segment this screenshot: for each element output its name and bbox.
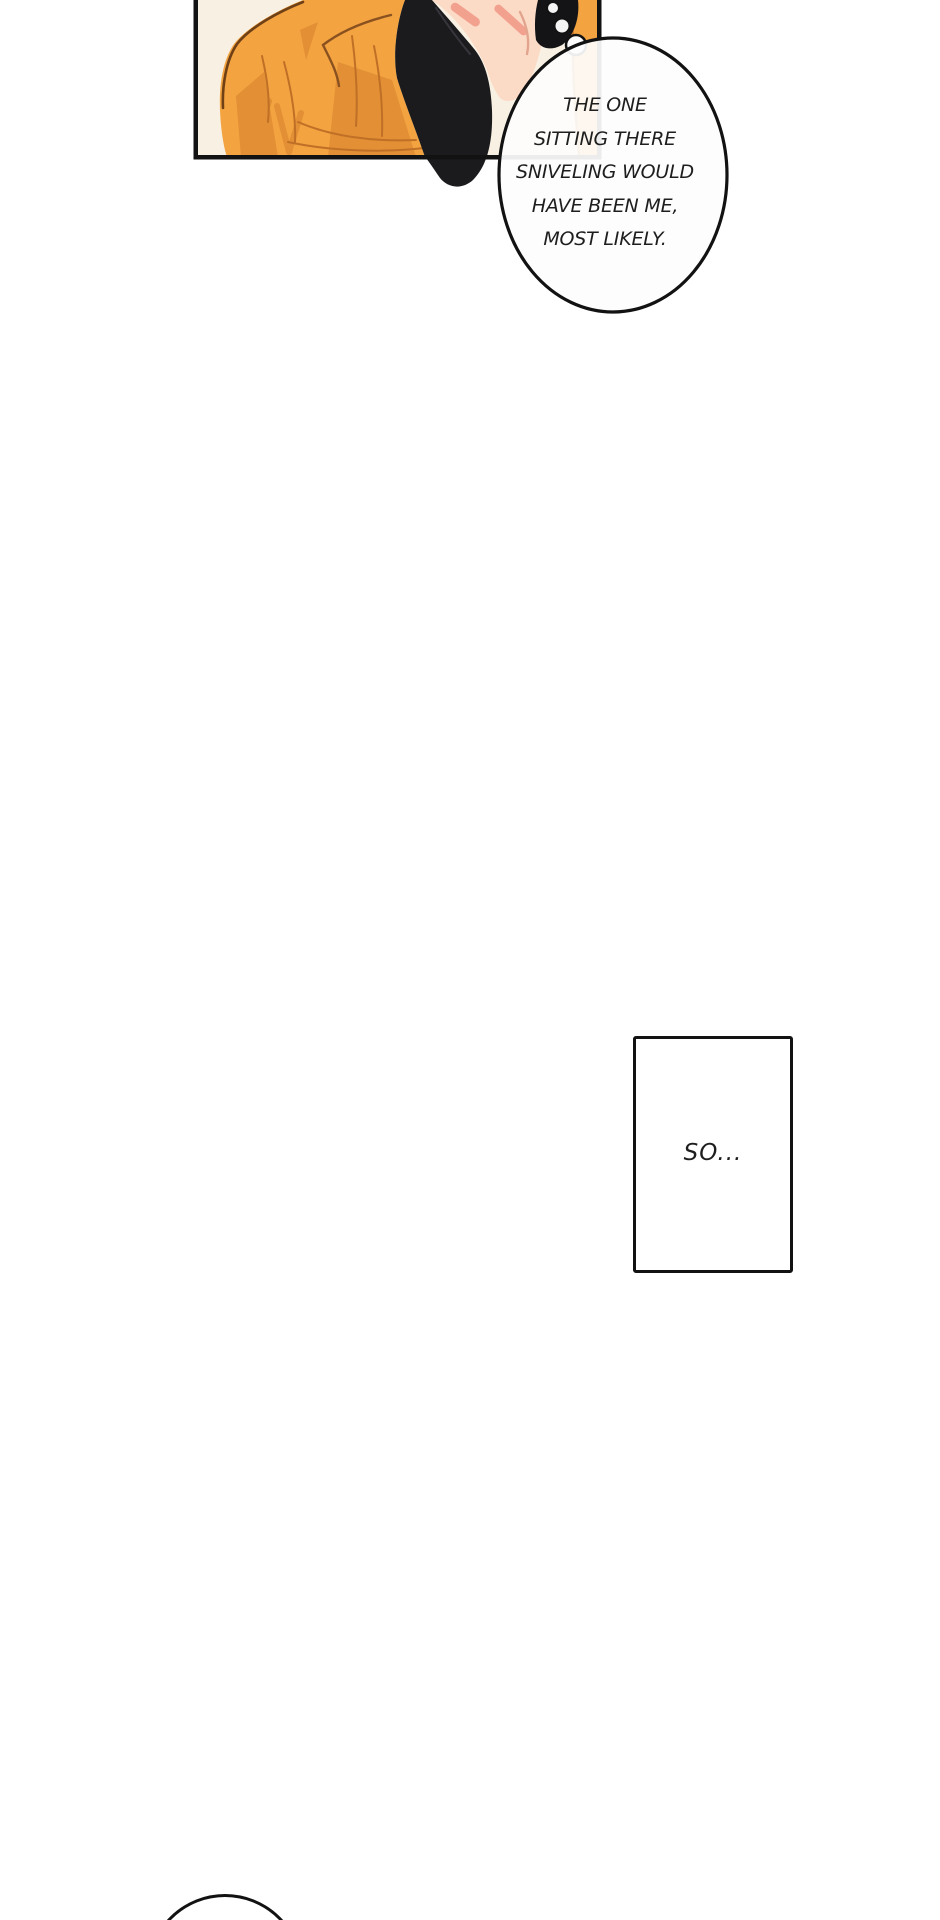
- so-panel: SO...: [633, 1036, 793, 1273]
- speech-bubble-line: SITTING THERE: [458, 123, 752, 157]
- bottom-speech-bubble-partial: [147, 1894, 303, 1920]
- so-panel-text: SO...: [684, 1140, 743, 1166]
- webtoon-page: THE ONE SITTING THERE SNIVELING WOULD HA…: [0, 0, 940, 1920]
- speech-bubble: THE ONE SITTING THERE SNIVELING WOULD HA…: [458, 89, 752, 257]
- speech-bubble-line: HAVE BEEN ME,: [458, 190, 752, 224]
- speech-bubble-line: MOST LIKELY.: [458, 223, 752, 257]
- speech-bubble-line: THE ONE: [458, 89, 752, 123]
- speech-bubble-line: SNIVELING WOULD: [458, 156, 752, 190]
